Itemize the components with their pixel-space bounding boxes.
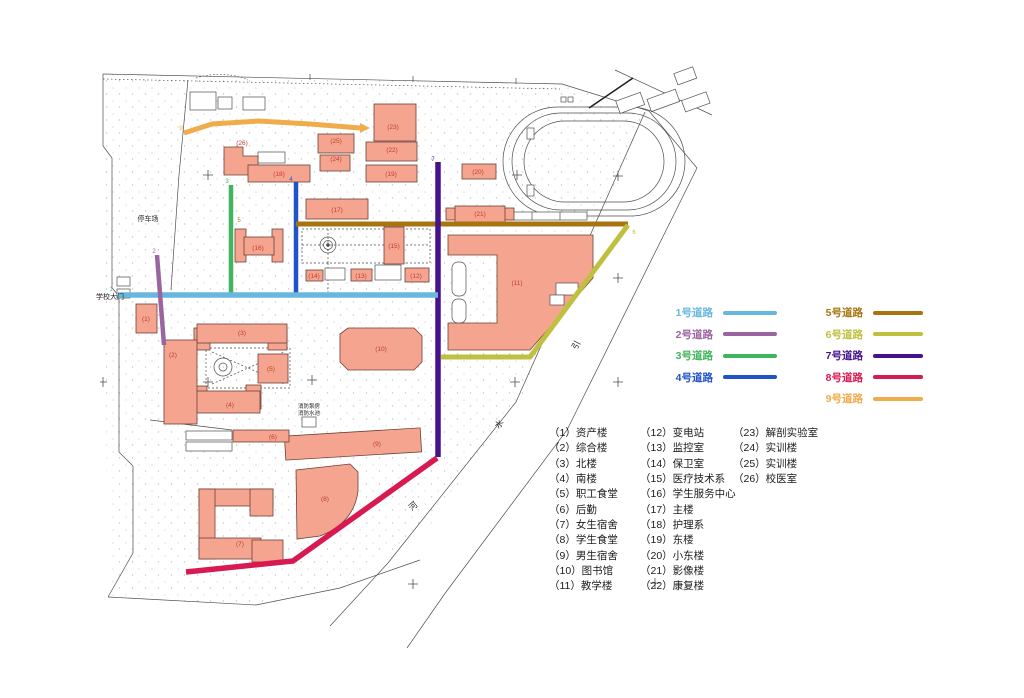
river-top-join [649, 111, 697, 168]
fire-pool-box [302, 417, 316, 427]
shed-row-1 [186, 431, 232, 440]
road-5-legend-swatch [873, 311, 923, 315]
road-legend-row-3: 3号道路 [665, 345, 777, 367]
label-building-15: (15) [388, 243, 400, 250]
outbuilding-2 [218, 97, 232, 109]
road-9-legend-label: 9号道路 [815, 391, 863, 406]
label-building-5: (5) [267, 366, 275, 373]
road-2-legend-label: 2号道路 [665, 327, 713, 342]
road-legend-row-8: 8号道路 [815, 367, 923, 389]
building-list-col-3: （23）解剖实验室 （24）实训楼 （25）实训楼 （26）校医室 [733, 426, 843, 487]
list-item-6: （6）后勤 [549, 503, 639, 518]
label-building-13: (13) [355, 273, 367, 280]
list-item-22: （22）康复楼 [640, 579, 740, 594]
campus-map-page: 1 2 3 4 5 6 7 8 9 (1) (2) (3) (4) (5) (6… [0, 0, 1024, 698]
road-3-legend-label: 3号道路 [665, 348, 713, 363]
list-item-24: （24）实训楼 [733, 441, 843, 456]
service-building-a [325, 268, 345, 280]
shed-row-2 [186, 442, 232, 451]
outbuilding-1 [190, 92, 216, 110]
service-building-b [375, 265, 401, 280]
label-building-17: (17) [331, 207, 343, 214]
list-item-26: （26）校医室 [733, 472, 843, 487]
small-hut-b [568, 97, 573, 102]
label-building-8: (8) [321, 496, 329, 503]
gate-label: 学校大门 [96, 292, 124, 301]
list-item-2: （2）综合楼 [549, 441, 639, 456]
road-legend-row-2: 2号道路 [665, 324, 777, 346]
list-item-8: （8）学生食堂 [549, 533, 639, 548]
roundabout-center [327, 244, 330, 247]
road-legend-row-4: 4号道路 [665, 367, 777, 389]
road-7-legend-label: 7号道路 [815, 348, 863, 363]
small-hut-a [561, 97, 566, 102]
label-building-25: (25) [330, 138, 342, 145]
road-3-legend-swatch [723, 354, 777, 358]
label-building-22: (22) [386, 147, 398, 154]
label-building-20: (20) [472, 169, 484, 176]
list-item-18: （18）护理系 [640, 518, 740, 533]
road-6-legend-swatch [873, 332, 923, 336]
list-item-19: （19）东楼 [640, 533, 740, 548]
road-7-legend-swatch [873, 354, 923, 358]
fire-pool-label: 消防水池 [298, 409, 321, 417]
building-6 [233, 430, 289, 442]
road-legend-row-7: 7号道路 [815, 345, 923, 367]
road-5-legend-label: 5号道路 [815, 305, 863, 320]
road-legend-row-5: 5号道路 [815, 302, 923, 324]
road-9-legend-swatch [873, 397, 923, 401]
list-item-21: （21）影像楼 [640, 564, 740, 579]
list-item-3: （3）北楼 [549, 457, 639, 472]
building-list-col-1: （1）资产楼 （2）综合楼 （3）北楼 （4）南楼 （5）职工食堂 （6）后勤 … [549, 426, 639, 595]
label-building-16: (16) [252, 245, 264, 252]
label-building-10: (10) [375, 346, 387, 353]
list-item-17: （17）主楼 [640, 503, 740, 518]
label-building-6: (6) [269, 434, 277, 441]
list-item-11: （11）教学楼 [549, 579, 639, 594]
label-building-26: (26) [236, 140, 248, 147]
list-item-23: （23）解剖实验室 [733, 426, 843, 441]
label-building-4: (4) [226, 402, 234, 409]
list-item-4: （4）南楼 [549, 472, 639, 487]
road-8-legend-swatch [873, 375, 923, 379]
list-item-16: （16）学生服务中心 [640, 487, 740, 502]
list-item-13: （13）监控室 [640, 441, 740, 456]
list-item-20: （20）小东楼 [640, 549, 740, 564]
road-8-legend-label: 8号道路 [815, 370, 863, 385]
list-item-15: （15）医疗技术系 [640, 472, 740, 487]
road-1-legend-swatch [723, 311, 777, 315]
list-item-5: （5）职工食堂 [549, 487, 639, 502]
road-6-legend-label: 6号道路 [815, 327, 863, 342]
road-1-legend-label: 1号道路 [665, 305, 713, 320]
track-stand [505, 212, 587, 220]
road-6-tag: 6 [632, 230, 636, 236]
label-building-7: (7) [236, 541, 244, 548]
outbuilding-3 [243, 97, 265, 110]
list-item-25: （25）实训楼 [733, 457, 843, 472]
building-list-col-2: （12）变电站 （13）监控室 （14）保卫室 （15）医疗技术系 （16）学生… [640, 426, 740, 595]
list-item-14: （14）保卫室 [640, 457, 740, 472]
label-building-12: (12) [410, 273, 422, 280]
label-building-11: (11) [511, 280, 522, 287]
track-mark-north [527, 128, 534, 139]
list-item-7: （7）女生宿舍 [549, 518, 639, 533]
road-4-legend-swatch [723, 375, 777, 379]
label-building-18: (18) [273, 171, 285, 178]
track-mark-south [527, 185, 534, 196]
gate-house-north [117, 277, 130, 286]
list-item-1: （1）资产楼 [549, 426, 639, 441]
road-legend-right: 5号道路 6号道路 7号道路 8号道路 9号道路 [815, 302, 923, 410]
road-legend-row-1: 1号道路 [665, 302, 777, 324]
label-building-24: (24) [330, 156, 342, 163]
building-23 [374, 104, 416, 141]
label-building-21: (21) [474, 211, 486, 218]
list-item-9: （9）男生宿舍 [549, 549, 639, 564]
list-item-12: （12）变电站 [640, 426, 740, 441]
label-building-3: (3) [238, 330, 246, 337]
label-building-19: (19) [385, 171, 397, 178]
label-building-23: (23) [387, 124, 399, 131]
label-building-9: (9) [373, 441, 381, 448]
fire-pump-label: 消防泵房 [298, 402, 321, 410]
road-legend-row-6: 6号道路 [815, 324, 923, 346]
road-legend-left: 1号道路 2号道路 3号道路 4号道路 [665, 302, 777, 388]
road-4-legend-label: 4号道路 [665, 370, 713, 385]
list-item-10: （10）图书馆 [549, 564, 639, 579]
label-building-2: (2) [169, 352, 177, 359]
label-building-1: (1) [142, 316, 150, 323]
outbuilding-4 [258, 152, 285, 163]
road-legend-row-9: 9号道路 [815, 388, 923, 410]
river-char-yin: 引 [570, 339, 583, 351]
road-2-legend-swatch [723, 332, 777, 336]
label-building-14: (14) [308, 273, 320, 280]
parking-label: 停车场 [138, 214, 159, 223]
